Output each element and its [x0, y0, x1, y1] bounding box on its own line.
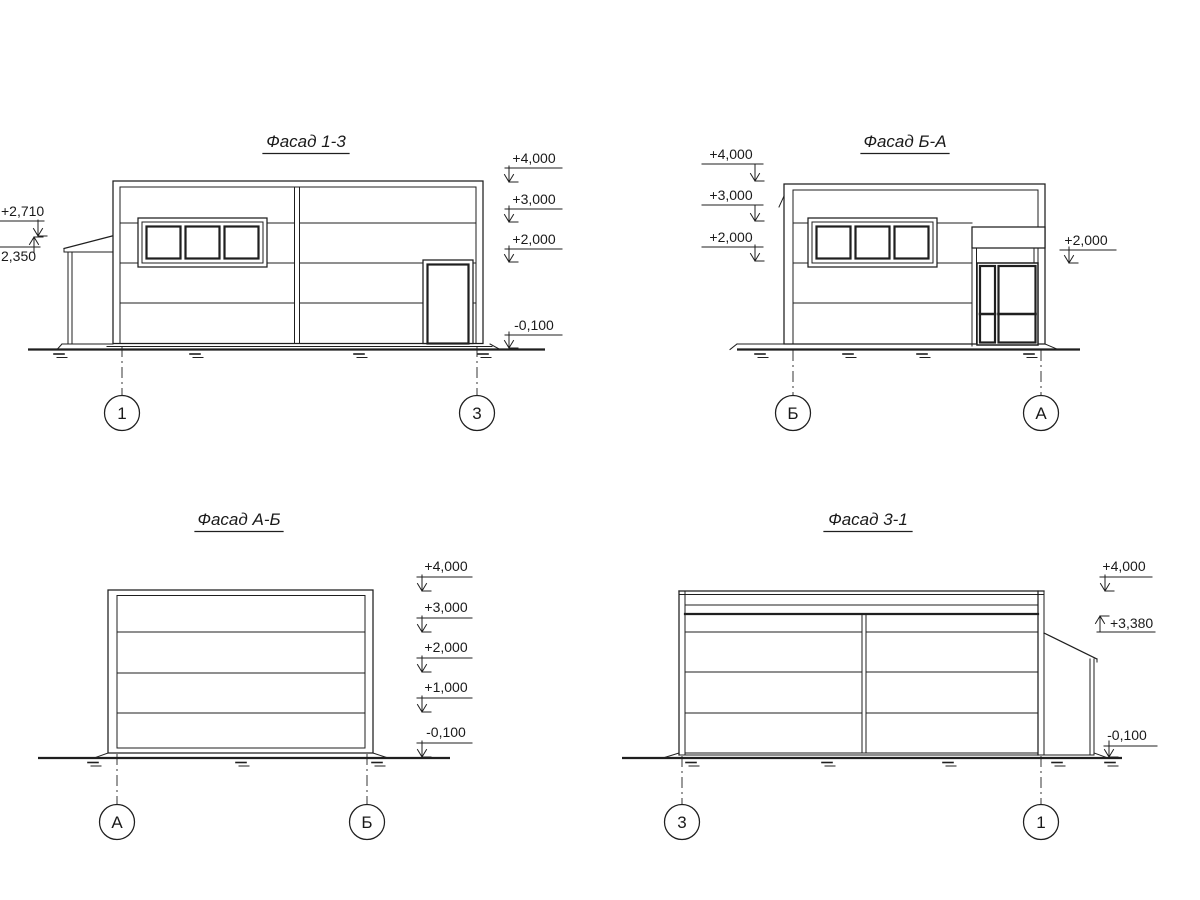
elevation-mark: -0,100: [1104, 727, 1157, 757]
elevation-mark: -0,100: [417, 724, 472, 757]
facade-3-1-title: Фасад 3-1: [828, 510, 908, 529]
elevation-marks: +4,000 +3,000 +2,000 -0,100 +2,710: [0, 150, 562, 348]
elevation-mark: -0,100: [505, 317, 563, 348]
facade-b-a-title: Фасад Б-А: [863, 132, 946, 151]
elevation-marks: +4,000 +3,380 -0,100: [1096, 558, 1158, 757]
axis-bubble-3: 3: [665, 805, 700, 840]
facade-1-3-title: Фасад 1-3: [266, 132, 346, 151]
facade-b-a: Фасад Б-А: [702, 132, 1116, 431]
elevation-mark: +2,000: [505, 231, 563, 262]
elevation-mark: 2,350: [0, 237, 43, 264]
svg-text:+4,000: +4,000: [1102, 558, 1145, 574]
glass-double-door: [977, 263, 1038, 345]
axis-label: Б: [787, 404, 798, 423]
svg-text:+3,380: +3,380: [1110, 615, 1153, 631]
elevation-drawing: Фасад 1-3: [0, 0, 1200, 900]
facade-a-b-title: Фасад А-Б: [197, 510, 280, 529]
svg-text:-0,100: -0,100: [514, 317, 554, 333]
ground: [737, 350, 1080, 358]
elevation-mark: +2,710: [0, 203, 47, 236]
drawing-sheet: Фасад 1-3: [0, 0, 1200, 900]
elevation-mark: +4,000: [505, 150, 563, 182]
elevation-mark: +4,000: [702, 146, 764, 181]
elevation-mark: +3,000: [702, 187, 764, 221]
entrance: [972, 227, 1045, 346]
svg-text:+1,000: +1,000: [424, 679, 467, 695]
axis-label: Б: [361, 813, 372, 832]
axis-label: 1: [117, 404, 126, 423]
elevation-mark: +2,000: [1060, 232, 1116, 263]
axis-bubble-a: А: [1024, 396, 1059, 431]
axis-bubble-3: 3: [460, 396, 495, 431]
svg-text:+2,710: +2,710: [1, 203, 44, 219]
elevation-mark: +3,000: [417, 599, 472, 632]
elevation-mark: +3,000: [505, 191, 563, 222]
elevation-mark: +4,000: [417, 558, 472, 591]
ground: [28, 350, 545, 358]
axis-bubble-a: А: [100, 805, 135, 840]
axis-bubble-b: Б: [350, 805, 385, 840]
axis-label: А: [111, 813, 123, 832]
porch-annex: [1044, 633, 1108, 758]
facade-3-1: Фасад 3-1: [622, 510, 1157, 840]
axes: А Б: [100, 754, 385, 840]
svg-text:+4,000: +4,000: [512, 150, 555, 166]
door: [423, 260, 473, 344]
elevation-mark: +4,000: [1100, 558, 1152, 591]
svg-text:+3,000: +3,000: [709, 187, 752, 203]
ground: [38, 758, 450, 766]
porch-annex: [57, 236, 113, 350]
svg-text:+2,000: +2,000: [1064, 232, 1107, 248]
svg-text:+2,000: +2,000: [424, 639, 467, 655]
ground: [622, 758, 1122, 766]
axis-bubble-b: Б: [776, 396, 811, 431]
svg-text:-0,100: -0,100: [1107, 727, 1147, 743]
ribbon-window: [808, 218, 937, 267]
elevation-mark: +1,000: [417, 679, 472, 712]
svg-text:+4,000: +4,000: [709, 146, 752, 162]
elevation-mark: +2,000: [417, 639, 472, 672]
building-outline: [94, 590, 388, 758]
svg-text:+3,000: +3,000: [512, 191, 555, 207]
elevation-marks: +4,000 +3,000 +2,000 +1,000 -0,100: [417, 558, 472, 757]
svg-text:+2,000: +2,000: [512, 231, 555, 247]
canopy: [972, 227, 1045, 248]
elevation-mark: +3,380: [1096, 615, 1156, 632]
svg-text:2,350: 2,350: [1, 248, 36, 264]
svg-text:+3,000: +3,000: [424, 599, 467, 615]
axis-bubble-1: 1: [1024, 805, 1059, 840]
building-outline: [663, 591, 1094, 758]
axes: 1 3: [105, 346, 495, 431]
axis-bubble-1: 1: [105, 396, 140, 431]
facade-a-b: Фасад А-Б А Б: [38, 510, 472, 840]
axis-label: 3: [677, 813, 686, 832]
facade-1-3: Фасад 1-3: [0, 132, 562, 431]
axes: Б А: [776, 350, 1059, 431]
elevation-mark: +2,000: [702, 229, 764, 261]
svg-text:+4,000: +4,000: [424, 558, 467, 574]
axis-label: А: [1035, 404, 1047, 423]
ribbon-window: [138, 218, 267, 267]
svg-text:+2,000: +2,000: [709, 229, 752, 245]
axis-label: 1: [1036, 813, 1045, 832]
axes: 3 1: [665, 756, 1059, 840]
svg-text:-0,100: -0,100: [426, 724, 466, 740]
axis-label: 3: [472, 404, 481, 423]
